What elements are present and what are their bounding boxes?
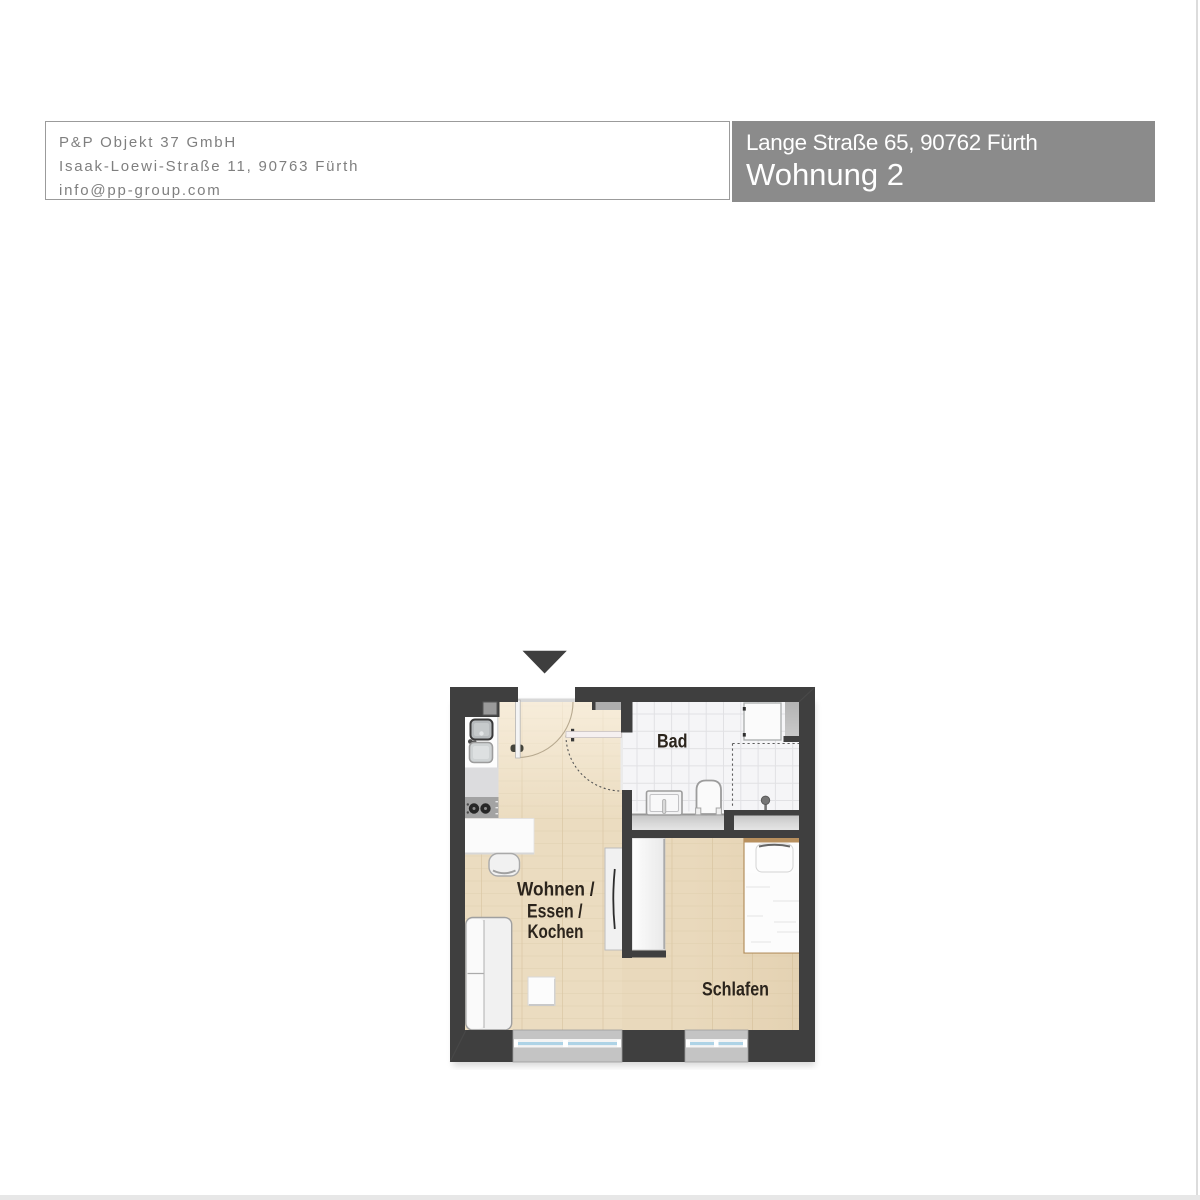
svg-text:Schlafen: Schlafen [702,980,769,1001]
svg-text:Kochen: Kochen [528,922,584,943]
svg-text:Bad: Bad [657,732,688,753]
svg-text:Wohnen /: Wohnen / [517,880,595,901]
svg-text:Essen /: Essen / [527,902,583,923]
